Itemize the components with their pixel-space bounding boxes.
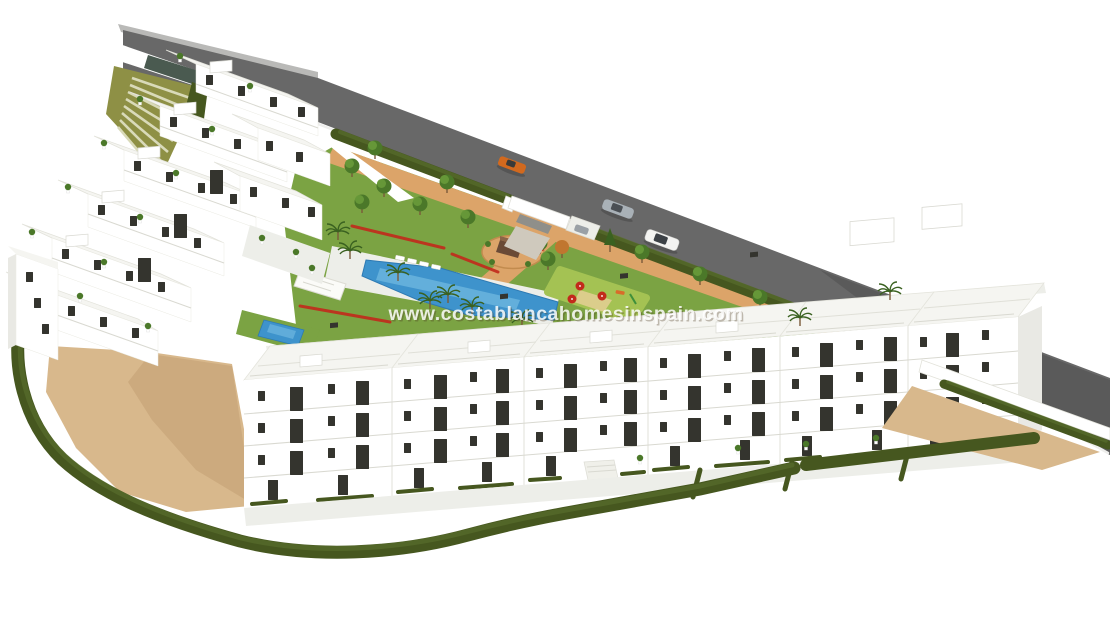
window bbox=[258, 391, 265, 401]
watermark: www.costablancahomesinspain.com www.cost… bbox=[387, 303, 745, 327]
window bbox=[356, 381, 369, 405]
watermark-text: www.costablancahomesinspain.com bbox=[387, 303, 743, 325]
window bbox=[982, 362, 989, 372]
window bbox=[170, 117, 177, 127]
window bbox=[724, 351, 731, 361]
window bbox=[724, 383, 731, 393]
window bbox=[688, 354, 701, 378]
end-tower bbox=[8, 246, 58, 360]
door bbox=[670, 446, 680, 466]
penthouse bbox=[922, 204, 962, 229]
window bbox=[820, 407, 833, 431]
window bbox=[624, 390, 637, 414]
rooftop-box bbox=[174, 102, 196, 115]
window bbox=[982, 330, 989, 340]
window bbox=[282, 198, 289, 208]
roof-window bbox=[330, 322, 338, 328]
window bbox=[258, 455, 265, 465]
window bbox=[536, 368, 543, 378]
playground-umbrella bbox=[576, 282, 585, 291]
window bbox=[94, 260, 101, 270]
window bbox=[688, 386, 701, 410]
window bbox=[724, 415, 731, 425]
rooftop-box bbox=[102, 190, 124, 203]
window bbox=[202, 128, 209, 138]
window bbox=[660, 358, 667, 368]
door bbox=[740, 440, 750, 460]
facade-stairs bbox=[584, 460, 618, 480]
door bbox=[546, 456, 556, 476]
playground-umbrella bbox=[598, 292, 607, 301]
door bbox=[414, 468, 424, 488]
penthouse bbox=[850, 218, 894, 246]
window bbox=[792, 347, 799, 357]
window bbox=[328, 416, 335, 426]
window bbox=[470, 436, 477, 446]
window bbox=[624, 422, 637, 446]
window bbox=[138, 258, 151, 282]
window bbox=[884, 337, 897, 361]
window bbox=[624, 358, 637, 382]
window bbox=[536, 432, 543, 442]
rooftop-box bbox=[66, 234, 88, 247]
window bbox=[238, 86, 245, 96]
window bbox=[600, 361, 607, 371]
window bbox=[328, 384, 335, 394]
window bbox=[434, 375, 447, 399]
window bbox=[792, 379, 799, 389]
rooftop-box bbox=[590, 330, 612, 343]
window bbox=[536, 400, 543, 410]
window bbox=[356, 445, 369, 469]
rooftop-box bbox=[210, 60, 232, 73]
window bbox=[660, 422, 667, 432]
window bbox=[600, 425, 607, 435]
rooftop-box bbox=[468, 340, 490, 353]
window bbox=[600, 393, 607, 403]
window bbox=[792, 411, 799, 421]
window bbox=[308, 207, 315, 217]
window bbox=[356, 413, 369, 437]
window bbox=[328, 448, 335, 458]
window bbox=[158, 282, 165, 292]
window bbox=[126, 271, 133, 281]
window bbox=[404, 411, 411, 421]
window bbox=[564, 364, 577, 388]
window bbox=[100, 317, 107, 327]
window bbox=[660, 390, 667, 400]
window bbox=[194, 238, 201, 248]
window bbox=[250, 187, 257, 197]
window bbox=[856, 404, 863, 414]
window bbox=[434, 439, 447, 463]
door bbox=[268, 480, 278, 500]
window bbox=[62, 249, 69, 259]
window bbox=[130, 216, 137, 226]
window bbox=[920, 337, 927, 347]
window bbox=[132, 328, 139, 338]
roof-window bbox=[500, 294, 508, 300]
window bbox=[290, 451, 303, 475]
aerial-render: www.costablancahomesinspain.com www.cost… bbox=[0, 0, 1110, 626]
roof-window bbox=[750, 252, 758, 258]
window bbox=[856, 340, 863, 350]
rooftop-box bbox=[138, 146, 160, 159]
window bbox=[98, 205, 105, 215]
window bbox=[298, 107, 305, 117]
window bbox=[752, 412, 765, 436]
window bbox=[270, 97, 277, 107]
window bbox=[470, 404, 477, 414]
render-canvas: www.costablancahomesinspain.com www.cost… bbox=[0, 0, 1110, 626]
window bbox=[856, 372, 863, 382]
window bbox=[230, 194, 237, 204]
window bbox=[166, 172, 173, 182]
window bbox=[290, 419, 303, 443]
window bbox=[496, 401, 509, 425]
window bbox=[234, 139, 241, 149]
window bbox=[290, 387, 303, 411]
rooftop-box bbox=[300, 354, 322, 367]
roof-window bbox=[620, 273, 628, 279]
window bbox=[404, 443, 411, 453]
window bbox=[34, 298, 41, 308]
window bbox=[258, 423, 265, 433]
window bbox=[134, 161, 141, 171]
window bbox=[434, 407, 447, 431]
window bbox=[266, 141, 273, 151]
window bbox=[174, 214, 187, 238]
window bbox=[42, 324, 49, 334]
window bbox=[688, 418, 701, 442]
window bbox=[884, 369, 897, 393]
door bbox=[482, 462, 492, 482]
window bbox=[564, 396, 577, 420]
window bbox=[210, 170, 223, 194]
window bbox=[496, 433, 509, 457]
window bbox=[820, 343, 833, 367]
window bbox=[198, 183, 205, 193]
window bbox=[820, 375, 833, 399]
window bbox=[496, 369, 509, 393]
window bbox=[206, 75, 213, 85]
window bbox=[404, 379, 411, 389]
window bbox=[564, 428, 577, 452]
window bbox=[26, 272, 33, 282]
window bbox=[752, 380, 765, 404]
window bbox=[752, 348, 765, 372]
window bbox=[68, 306, 75, 316]
window bbox=[162, 227, 169, 237]
window bbox=[296, 152, 303, 162]
door bbox=[338, 475, 348, 495]
window bbox=[470, 372, 477, 382]
window bbox=[946, 333, 959, 357]
